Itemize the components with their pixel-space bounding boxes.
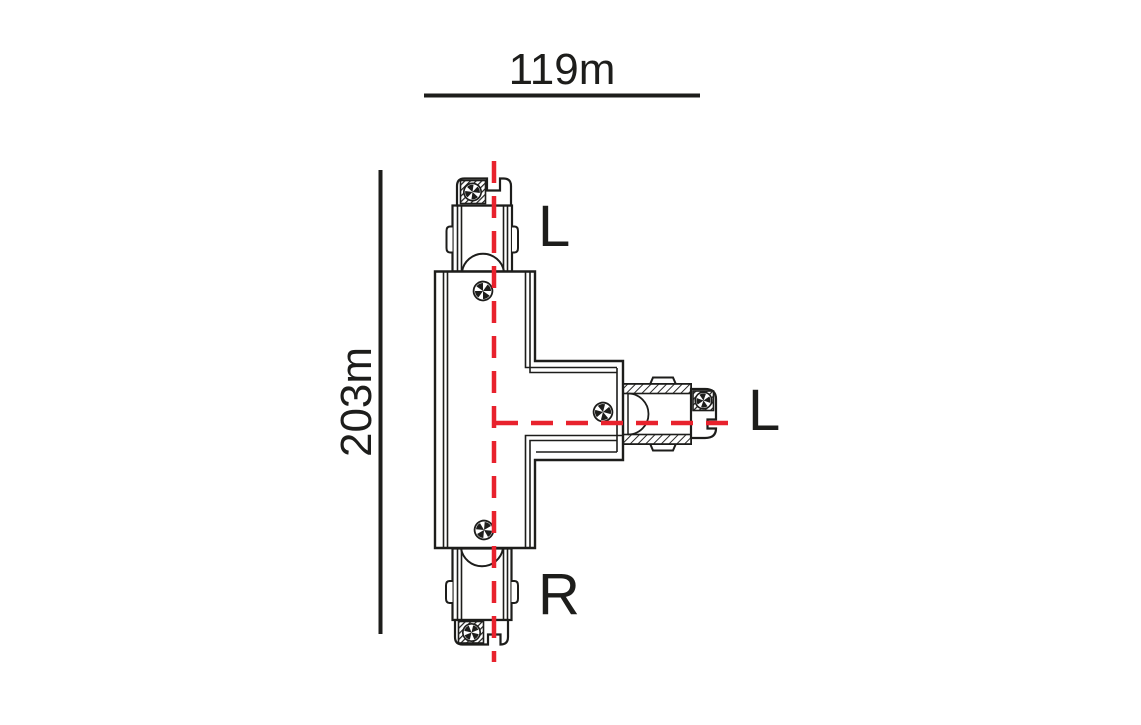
right-track-ridge-bottom <box>623 435 691 445</box>
label-bottom-end: R <box>538 562 580 627</box>
top-end-connector <box>447 179 519 272</box>
height-dimension: 203m <box>332 170 381 634</box>
bottom-neck-right-tab <box>512 581 519 603</box>
bottom-neck-left-tab <box>446 581 453 603</box>
main-body <box>435 272 623 549</box>
top-neck-right-tab <box>512 227 518 253</box>
label-top-end: L <box>538 194 570 259</box>
label-right-end: L <box>748 378 780 443</box>
dimension-width-label: 119m <box>509 45 616 94</box>
width-dimension: 119m <box>424 45 700 96</box>
top-neck-left-tab <box>447 227 453 253</box>
dimension-height-label: 203m <box>332 347 381 457</box>
t-connector-technical-drawing: 119m 203m L L R <box>0 0 1141 720</box>
bottom-end-connector <box>446 549 518 645</box>
right-track-ridge-top <box>623 384 691 394</box>
right-end-connector <box>623 378 716 451</box>
